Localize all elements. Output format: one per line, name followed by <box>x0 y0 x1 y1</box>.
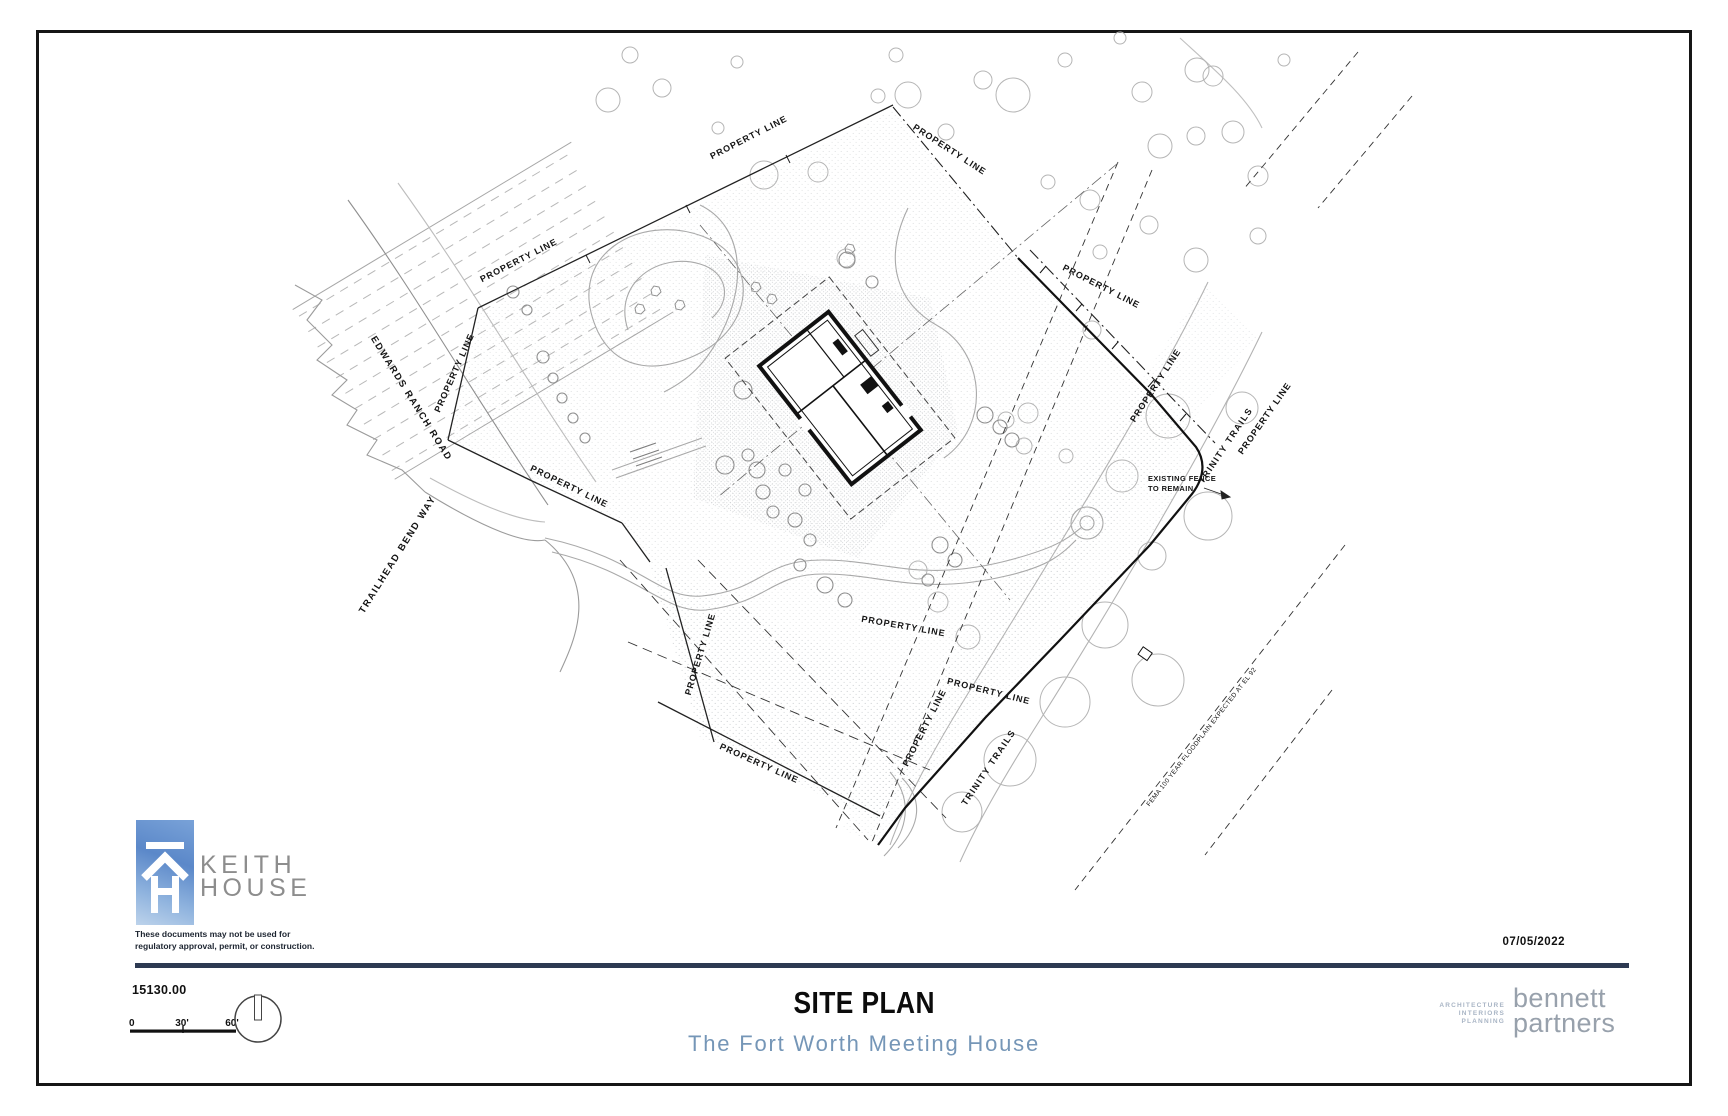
tree-canopy <box>1080 190 1100 210</box>
tree-canopy <box>1184 248 1208 272</box>
tree-canopy <box>622 47 638 63</box>
tree-canopy <box>712 122 724 134</box>
tree-canopy <box>871 89 885 103</box>
disclaimer-note: These documents may not be used for regu… <box>135 929 314 953</box>
bennett-service-architecture: ARCHITECTURE <box>1437 1002 1505 1010</box>
tree-canopy <box>596 88 620 112</box>
plan-label: PROPERTY LINE <box>1061 262 1142 310</box>
tree-canopy <box>653 79 671 97</box>
plan-label: TRINITY TRAILS <box>959 727 1017 807</box>
disclaimer-line2: regulatory approval, permit, or construc… <box>135 941 314 953</box>
plan-label: TO REMAIN. <box>1148 484 1196 493</box>
tree-canopy <box>895 82 921 108</box>
tree-canopy <box>1132 82 1152 102</box>
tree-canopy <box>1278 54 1290 66</box>
plan-label: EXISTING FENCE <box>1148 474 1216 483</box>
tree-canopy <box>1250 228 1266 244</box>
plan-label: PROPERTY LINE <box>478 236 559 284</box>
tree-canopy <box>1093 245 1107 259</box>
tree-canopy <box>889 48 903 62</box>
bennett-wordmark: bennett partners <box>1513 986 1615 1036</box>
tree-canopy <box>1148 134 1172 158</box>
plan-label: PROPERTY LINE <box>708 113 789 161</box>
house-icon <box>136 820 194 925</box>
keith-house-line2: HOUSE <box>200 877 311 900</box>
tree-canopy <box>1140 216 1158 234</box>
tree-canopy <box>1248 166 1268 186</box>
tree-canopy <box>1184 492 1232 540</box>
bennett-line2: partners <box>1513 1011 1615 1036</box>
tree-canopy <box>996 78 1030 112</box>
keith-house-logo-mark <box>136 820 194 925</box>
tree-canopy <box>1040 677 1090 727</box>
tree-canopy <box>1114 32 1126 44</box>
tree-canopy <box>1132 654 1184 706</box>
tree-canopy <box>1058 53 1072 67</box>
tree-canopy <box>974 71 992 89</box>
tree-canopy <box>507 286 519 298</box>
bennett-services: ARCHITECTURE INTERIORS PLANNING <box>1437 1002 1505 1026</box>
sheet-date: 07/05/2022 <box>1502 936 1565 948</box>
keith-house-wordmark: KEITH HOUSE <box>200 854 311 925</box>
titleblock-divider-rule <box>135 963 1629 968</box>
bennett-service-planning: PLANNING <box>1437 1018 1505 1026</box>
keith-house-logo: KEITH HOUSE <box>136 820 311 925</box>
bennett-partners-logo: ARCHITECTURE INTERIORS PLANNING bennett … <box>1437 986 1615 1036</box>
tree-canopy <box>1041 175 1055 189</box>
tree-canopy <box>1187 127 1205 145</box>
plan-label: FEMA 100 YEAR FLOODPLAIN EXPECTED AT EL … <box>1145 666 1258 807</box>
bennett-service-interiors: INTERIORS <box>1437 1010 1505 1018</box>
tree-canopy <box>1222 121 1244 143</box>
disclaimer-line1: These documents may not be used for <box>135 929 314 941</box>
plan-label: TRAILHEAD BEND WAY <box>357 494 439 616</box>
tree-canopy <box>731 56 743 68</box>
